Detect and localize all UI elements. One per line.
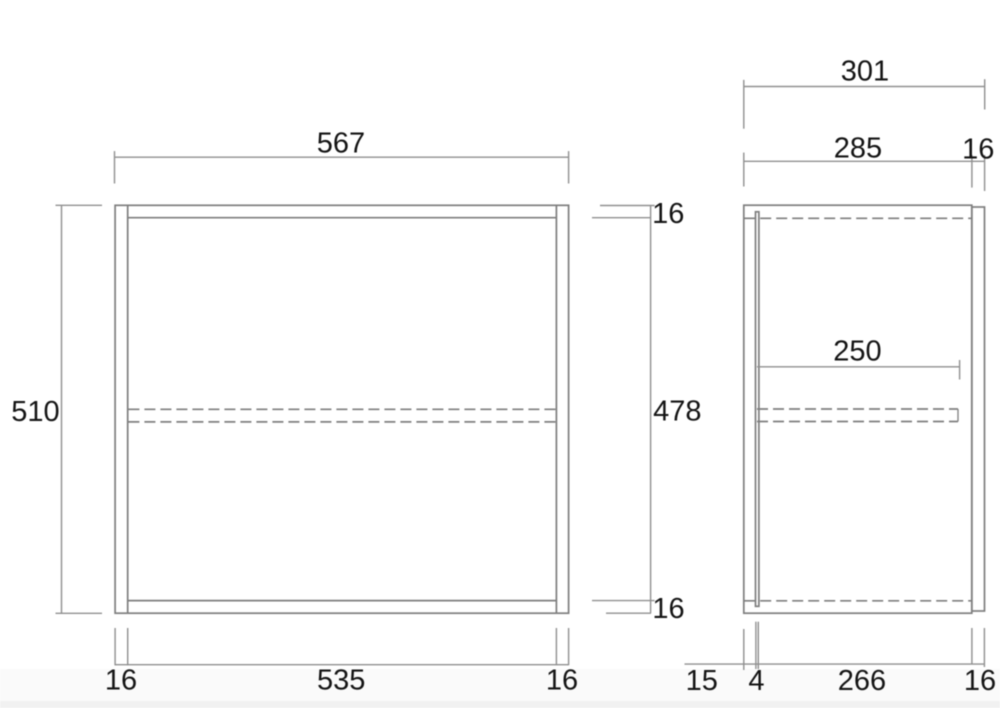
svg-text:16: 16: [652, 593, 684, 625]
svg-text:266: 266: [838, 665, 886, 697]
svg-text:301: 301: [841, 56, 889, 88]
svg-text:16: 16: [652, 198, 684, 230]
svg-text:285: 285: [834, 133, 882, 165]
svg-text:15: 15: [686, 665, 718, 697]
svg-text:16: 16: [546, 665, 578, 697]
svg-text:16: 16: [962, 134, 994, 166]
svg-text:478: 478: [653, 395, 701, 427]
svg-text:250: 250: [833, 336, 881, 368]
svg-text:535: 535: [317, 665, 365, 697]
svg-text:16: 16: [105, 665, 137, 697]
svg-text:4: 4: [748, 665, 764, 697]
svg-text:510: 510: [11, 396, 59, 428]
svg-text:567: 567: [317, 127, 365, 159]
svg-text:16: 16: [964, 665, 996, 697]
